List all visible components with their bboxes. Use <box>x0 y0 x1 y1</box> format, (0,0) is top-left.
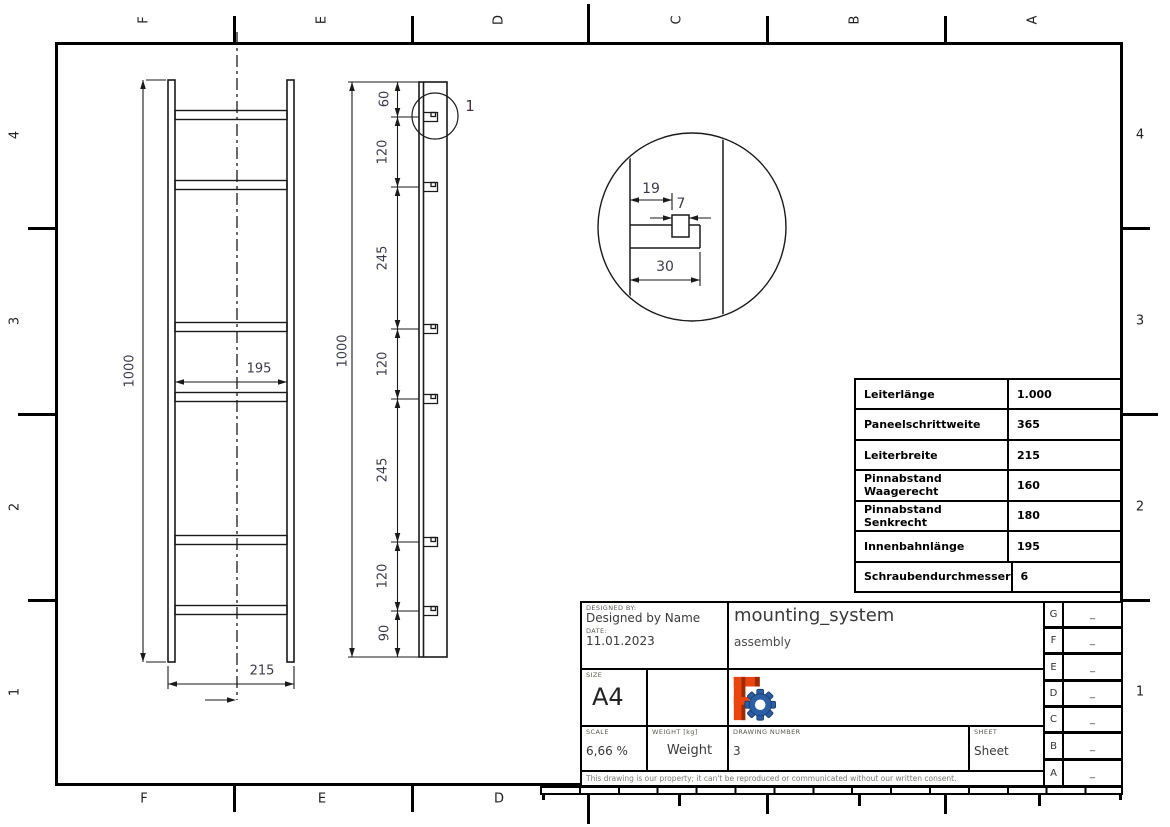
spec-value: 160 <box>1009 471 1120 499</box>
size-label: SIZE <box>582 670 646 679</box>
dim-detail-offset: 19 <box>640 182 662 196</box>
frame-tick <box>1123 413 1158 416</box>
dim-side-seg-245: 245 <box>377 244 390 273</box>
spec-table: Leiterlänge1.000 Paneelschrittweite365 L… <box>854 378 1122 593</box>
grid-label-top: E <box>315 16 330 24</box>
scale-value: 6,66 % <box>582 736 646 759</box>
frame-tick <box>28 599 55 602</box>
dim-front-height: 1000 <box>124 352 137 389</box>
grid-label-left: 1 <box>8 688 23 696</box>
grid-label-left: 2 <box>8 503 23 511</box>
titleblock-designer-cell: DESIGNED BY: Designed by Name DATE: 11.0… <box>580 601 729 670</box>
spec-label: Pinnabstand Waagerecht <box>856 471 1009 499</box>
revision-value: _ <box>1062 759 1123 787</box>
spec-value: 180 <box>1009 502 1120 530</box>
scale-ruler <box>540 786 1123 795</box>
dim-front-outer-width: 215 <box>248 665 277 678</box>
disclaimer-text: This drawing is our property; it can't b… <box>582 774 956 783</box>
titleblock-size-cell: SIZE A4 <box>580 668 648 727</box>
frame-tick <box>587 4 590 42</box>
table-row: Pinnabstand Senkrecht180 <box>856 502 1120 532</box>
dim-side-seg-60: 60 <box>379 89 392 110</box>
titleblock-weight-cell: WEIGHT [kg] Weight <box>646 725 729 772</box>
grid-label-right: 4 <box>1136 128 1144 143</box>
scale-label: SCALE <box>582 727 646 736</box>
revision-value: _ <box>1062 627 1123 654</box>
dim-side-seg-120: 120 <box>377 138 390 167</box>
revision-letter: F <box>1043 627 1064 654</box>
grid-label-bottom: F <box>140 792 147 807</box>
date-value: 11.01.2023 <box>582 635 727 649</box>
table-row: Schraubendurchmesser6 <box>856 563 1120 591</box>
frame-tick <box>233 786 236 812</box>
dim-side-seg-90: 90 <box>379 623 392 644</box>
spec-value: 1.000 <box>1009 380 1120 408</box>
titleblock-disclaimer-cell: This drawing is our property; it can't b… <box>580 770 1045 787</box>
revision-letter: E <box>1043 653 1064 681</box>
revision-value: _ <box>1062 680 1123 707</box>
titleblock-sheet-cell: SHEET Sheet <box>968 725 1045 772</box>
spec-value: 365 <box>1009 410 1120 438</box>
spec-label: Schraubendurchmesser <box>856 563 1013 591</box>
grid-label-left: 4 <box>8 131 23 139</box>
grid-label-bottom: E <box>318 792 326 807</box>
sheet-label: SHEET <box>970 727 1043 736</box>
titleblock-logo-cell <box>727 668 1045 727</box>
grid-label-right: 3 <box>1136 314 1144 329</box>
titleblock-drawing-number-cell: DRAWING NUMBER 3 <box>727 725 970 772</box>
frame-tick <box>411 16 414 42</box>
revision-value: _ <box>1062 706 1123 733</box>
table-row: Innenbahnlänge195 <box>856 532 1120 562</box>
weight-value: Weight <box>648 736 727 759</box>
frame-tick <box>1123 599 1150 602</box>
revision-letter: D <box>1043 680 1064 707</box>
grid-label-bottom: D <box>494 792 504 807</box>
spec-value: 195 <box>1009 532 1120 560</box>
frame-tick <box>766 16 769 42</box>
titleblock-empty-cell <box>646 668 729 727</box>
weight-label: WEIGHT [kg] <box>648 727 727 736</box>
table-row: Leiterlänge1.000 <box>856 380 1120 410</box>
detail-callout-label: 1 <box>465 97 475 115</box>
grid-label-top: D <box>492 15 507 25</box>
sheet-value: Sheet <box>970 736 1043 759</box>
grid-label-right: 2 <box>1136 500 1144 515</box>
dim-side-seg-120b: 120 <box>377 350 390 379</box>
revision-letter: B <box>1043 732 1064 760</box>
drawing-title: mounting_system <box>729 603 1043 626</box>
spec-label: Leiterbreite <box>856 441 1009 469</box>
table-row: Pinnabstand Waagerecht160 <box>856 471 1120 501</box>
spec-value: 215 <box>1009 441 1120 469</box>
spec-label: Leiterlänge <box>856 380 1009 408</box>
revision-letter: G <box>1043 601 1064 628</box>
revision-value: _ <box>1062 732 1123 760</box>
grid-label-top: A <box>1026 16 1041 25</box>
table-row: Paneelschrittweite365 <box>856 410 1120 440</box>
size-value: A4 <box>582 679 646 711</box>
revision-letter: C <box>1043 706 1064 733</box>
frame-tick <box>28 227 55 230</box>
revision-value: _ <box>1062 601 1123 628</box>
dim-side-height: 1000 <box>337 332 350 369</box>
titleblock-scale-cell: SCALE 6,66 % <box>580 725 648 772</box>
frame-tick <box>233 16 236 42</box>
grid-label-top: F <box>137 16 152 23</box>
dim-side-seg-120c: 120 <box>377 562 390 591</box>
grid-label-top: C <box>670 15 685 24</box>
dim-detail-pin-width: 7 <box>675 197 688 211</box>
frame-tick <box>1123 227 1150 230</box>
spec-label: Innenbahnlänge <box>856 532 1009 560</box>
revision-value: _ <box>1062 653 1123 681</box>
freecad-logo-icon <box>729 674 777 724</box>
table-row: Leiterbreite215 <box>856 441 1120 471</box>
frame-tick <box>944 16 947 42</box>
dim-detail-tab-width: 30 <box>654 260 676 274</box>
grid-label-right: 1 <box>1136 685 1144 700</box>
designed-by-value: Designed by Name <box>582 612 727 626</box>
dim-side-seg-245b: 245 <box>377 456 390 485</box>
grid-label-left: 3 <box>8 317 23 325</box>
titleblock-title-cell: mounting_system assembly <box>727 601 1045 670</box>
drawing-number-label: DRAWING NUMBER <box>729 727 968 736</box>
spec-value: 6 <box>1013 563 1120 591</box>
cad-drawing-page: { "drawing_frame": { "top_labels": ["F",… <box>0 0 1170 827</box>
grid-label-top: B <box>848 16 863 25</box>
frame-tick <box>411 786 414 812</box>
drawing-number-value: 3 <box>729 736 968 759</box>
revision-letter: A <box>1043 759 1064 787</box>
drawing-subtitle: assembly <box>729 626 1043 649</box>
dim-front-inner-width: 195 <box>245 363 274 376</box>
frame-tick <box>18 413 55 416</box>
spec-label: Pinnabstand Senkrecht <box>856 502 1009 530</box>
spec-label: Paneelschrittweite <box>856 410 1009 438</box>
